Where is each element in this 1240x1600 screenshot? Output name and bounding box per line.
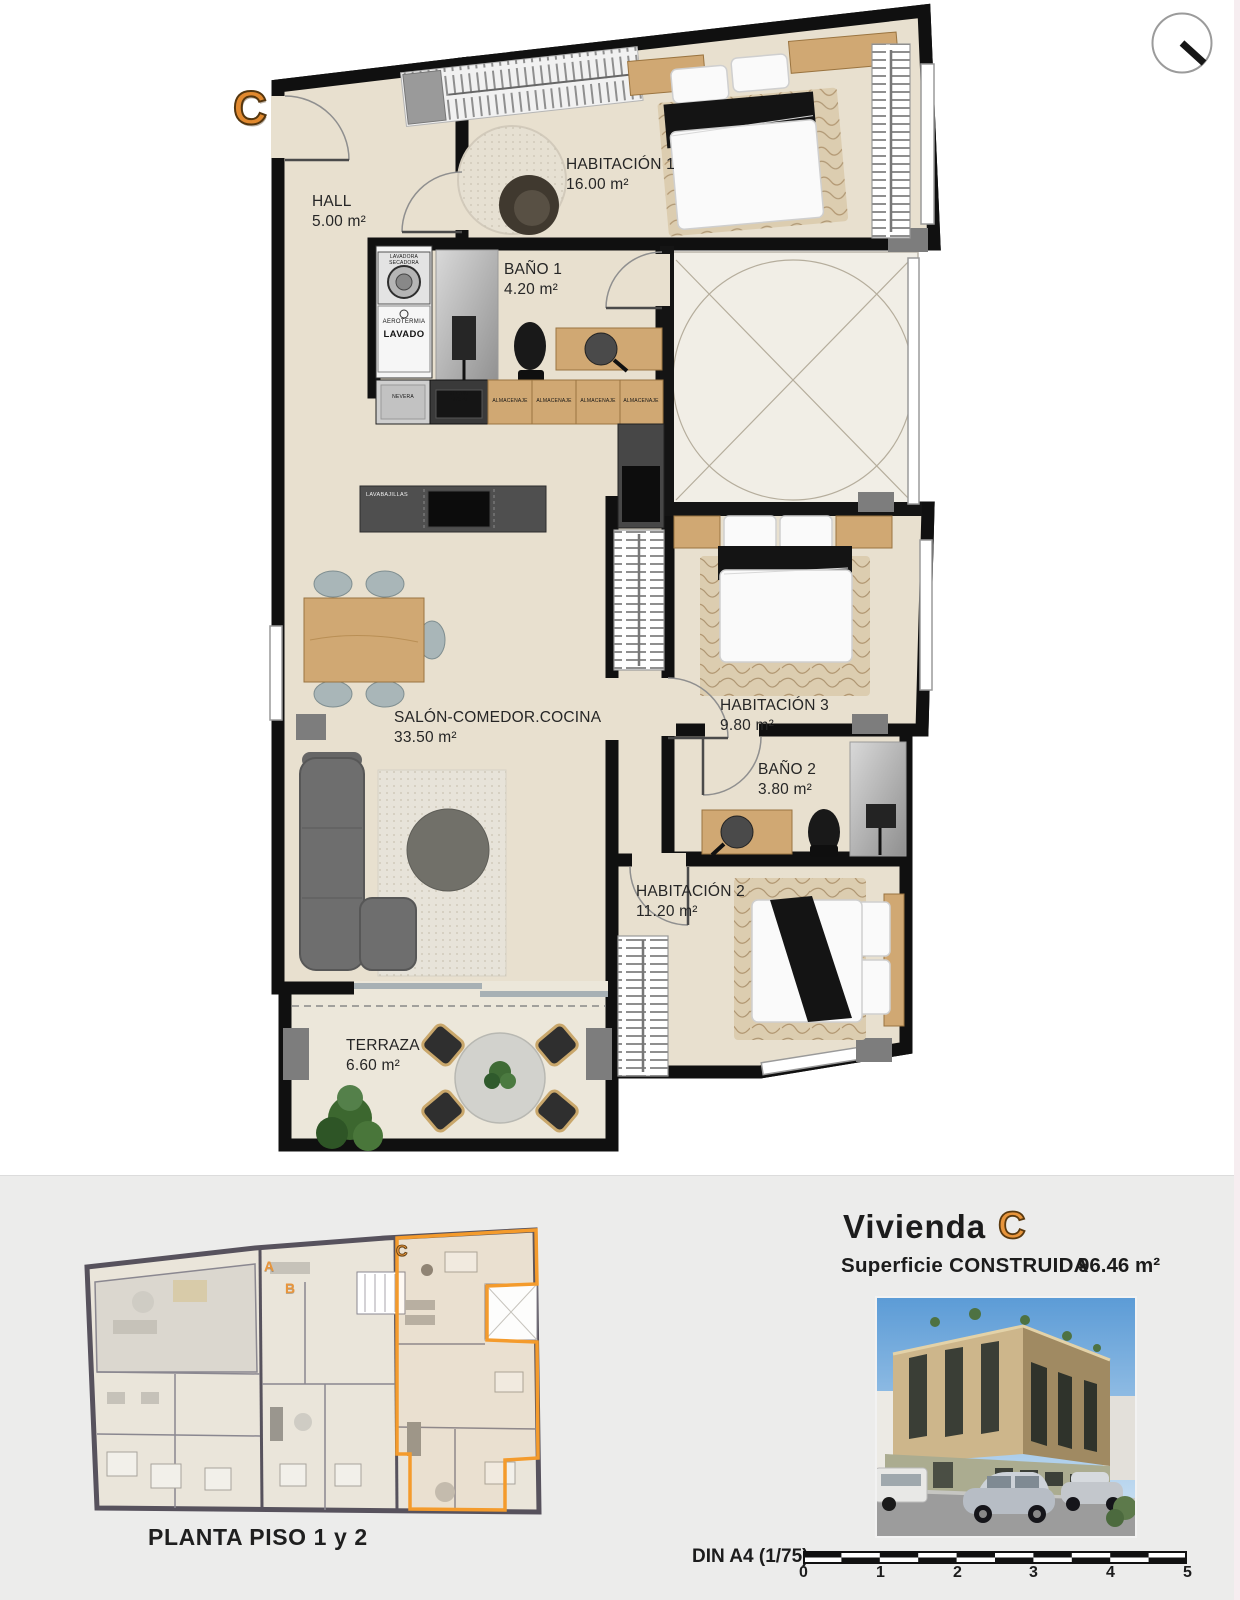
info-title: ViviendaC [843, 1205, 1027, 1248]
bedroom1-wardrobe [872, 44, 910, 238]
label-lavadora: LAVADORA SECADORA [389, 254, 419, 266]
info-title-text: Vivienda [843, 1208, 986, 1245]
scale-bar [803, 1551, 1187, 1564]
room-area: 16.00 m² [566, 175, 675, 195]
scale-tick-0: 0 [799, 1564, 808, 1582]
overview-unit-c-label: C [396, 1243, 408, 1261]
room-label-habitacion1: HABITACIÓN 1 16.00 m² [566, 155, 675, 195]
room-label-habitacion2: HABITACIÓN 2 11.20 m² [636, 882, 745, 922]
unit-letter-marker: C [233, 80, 267, 135]
room-name: BAÑO 1 [504, 260, 562, 280]
room-label-habitacion3: HABITACIÓN 3 9.80 m² [720, 696, 829, 736]
corridor-wardrobe [614, 530, 664, 670]
room-area: 3.80 m² [758, 780, 816, 800]
overview-unit-b-label: B [285, 1280, 295, 1296]
north-compass-icon [1151, 12, 1213, 74]
overview-caption: PLANTA PISO 1 y 2 [148, 1524, 368, 1551]
label-lavabajillas: LAVABAJILLAS [366, 492, 408, 499]
label-horno-micro: HORNO MICRO [449, 391, 469, 403]
overview-unit-a-label: A [264, 1258, 274, 1274]
label-almacenaje-2: ALMACENAJE [536, 398, 571, 404]
bedroom2-wardrobe [618, 936, 668, 1076]
bedroom3-bed [674, 516, 892, 696]
room-name: HABITACIÓN 1 [566, 155, 675, 175]
scale-tick-1: 1 [876, 1564, 885, 1582]
scale-tick-2: 2 [953, 1564, 962, 1582]
label-aerotermia: AEROTERMIA [383, 319, 426, 326]
info-unit-letter: C [998, 1205, 1026, 1247]
label-line: SECADORA [389, 260, 419, 266]
room-label-terraza: TERRAZA 6.60 m² [346, 1036, 420, 1076]
scale-tick-3: 3 [1029, 1564, 1038, 1582]
scale-tick-5: 5 [1183, 1564, 1192, 1582]
floor-plan-sheet: .room{fill:#e8e0cf;stroke:#101010;stroke… [0, 0, 1240, 1600]
scale-label: DIN A4 (1/75) [692, 1546, 809, 1568]
label-almacenaje-3: ALMACENAJE [580, 398, 615, 404]
room-label-bano2: BAÑO 2 3.80 m² [758, 760, 816, 800]
room-name: TERRAZA [346, 1036, 420, 1056]
label-almacenaje-4: ALMACENAJE [623, 398, 658, 404]
bedroom1-rug-armchair [458, 126, 566, 235]
scale-tick-4: 4 [1106, 1564, 1115, 1582]
room-area: 9.80 m² [720, 716, 829, 736]
room-label-salon: SALÓN-COMEDOR.COCINA 33.50 m² [394, 708, 601, 748]
room-area: 33.50 m² [394, 728, 601, 748]
room-name: SALÓN-COMEDOR.COCINA [394, 708, 601, 728]
label-almacenaje-1: ALMACENAJE [492, 398, 527, 404]
room-label-bano1: BAÑO 1 4.20 m² [504, 260, 562, 300]
room-area: 6.60 m² [346, 1056, 420, 1076]
surface-value: 96.46 m² [1078, 1254, 1160, 1278]
building-photo [875, 1296, 1137, 1538]
room-name: HABITACIÓN 2 [636, 882, 745, 902]
room-area: 5.00 m² [312, 212, 366, 232]
room-name: HALL [312, 192, 366, 212]
room-name: BAÑO 2 [758, 760, 816, 780]
room-area: 4.20 m² [504, 280, 562, 300]
room-label-hall: HALL 5.00 m² [312, 192, 366, 232]
patio-lightwell [660, 246, 922, 516]
label-lavado: LAVADO [383, 329, 424, 340]
room-area: 11.20 m² [636, 902, 745, 922]
page-edge-artifact [1234, 0, 1240, 1600]
surface-label: Superficie CONSTRUIDA [841, 1254, 1089, 1278]
label-nevera: NEVERA [392, 394, 414, 400]
overview-mini-plan [55, 1222, 615, 1527]
room-name: HABITACIÓN 3 [720, 696, 829, 716]
label-line: MICRO [450, 397, 468, 403]
